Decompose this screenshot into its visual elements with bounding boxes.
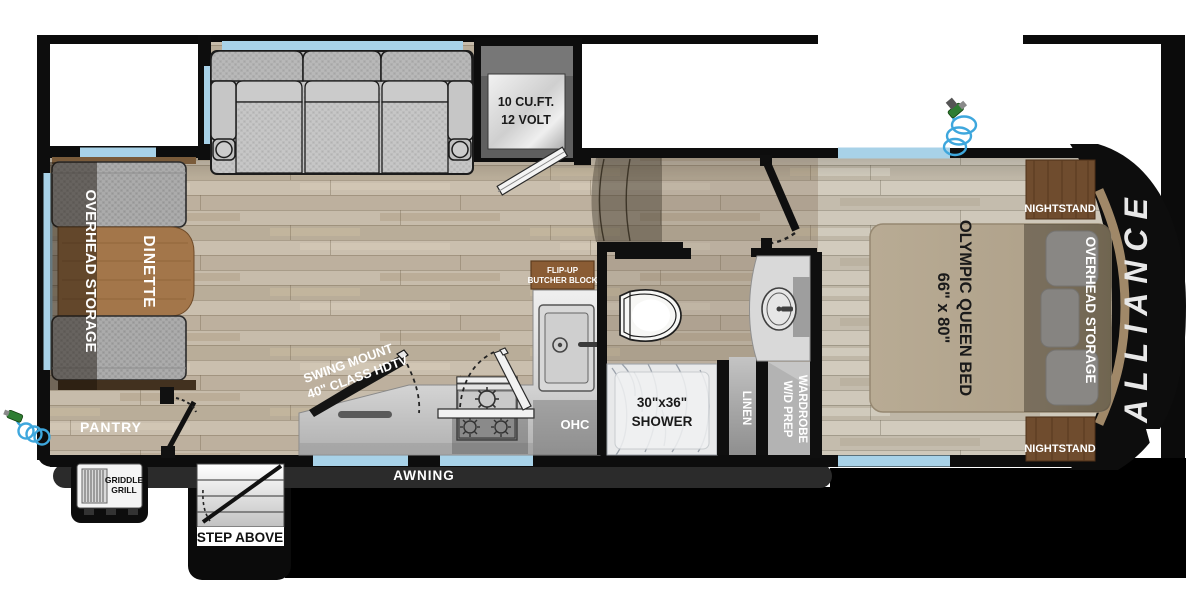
svg-text:ALLIANCE: ALLIANCE <box>1118 189 1154 424</box>
svg-text:10 CU.FT.: 10 CU.FT. <box>498 95 554 109</box>
svg-text:BUTCHER BLOCK: BUTCHER BLOCK <box>528 276 598 285</box>
svg-text:SHOWER: SHOWER <box>632 414 693 429</box>
svg-text:OLYMPIC QUEEN BED: OLYMPIC QUEEN BED <box>956 220 974 396</box>
svg-text:WARDROBE: WARDROBE <box>796 375 808 444</box>
svg-text:NIGHTSTAND: NIGHTSTAND <box>1024 203 1095 215</box>
svg-text:PANTRY: PANTRY <box>80 419 142 435</box>
svg-text:OHC: OHC <box>561 417 591 432</box>
svg-text:FLIP-UP: FLIP-UP <box>547 266 579 275</box>
svg-text:GRIDDLE: GRIDDLE <box>105 475 144 485</box>
svg-text:12 VOLT: 12 VOLT <box>501 113 551 127</box>
svg-text:W/D PREP: W/D PREP <box>781 381 793 438</box>
svg-text:OVERHEAD STORAGE: OVERHEAD STORAGE <box>1083 237 1098 384</box>
svg-text:NIGHTSTAND: NIGHTSTAND <box>1024 443 1095 455</box>
svg-text:DINETTE: DINETTE <box>140 235 157 308</box>
svg-text:LINEN: LINEN <box>740 391 752 426</box>
svg-text:OVERHEAD STORAGE: OVERHEAD STORAGE <box>82 189 99 352</box>
svg-text:66" x 80": 66" x 80" <box>934 273 952 344</box>
svg-text:STEP ABOVE: STEP ABOVE <box>197 530 283 545</box>
svg-text:GRILL: GRILL <box>111 485 137 495</box>
svg-text:30"x36": 30"x36" <box>637 395 687 410</box>
svg-text:AWNING: AWNING <box>393 468 455 483</box>
